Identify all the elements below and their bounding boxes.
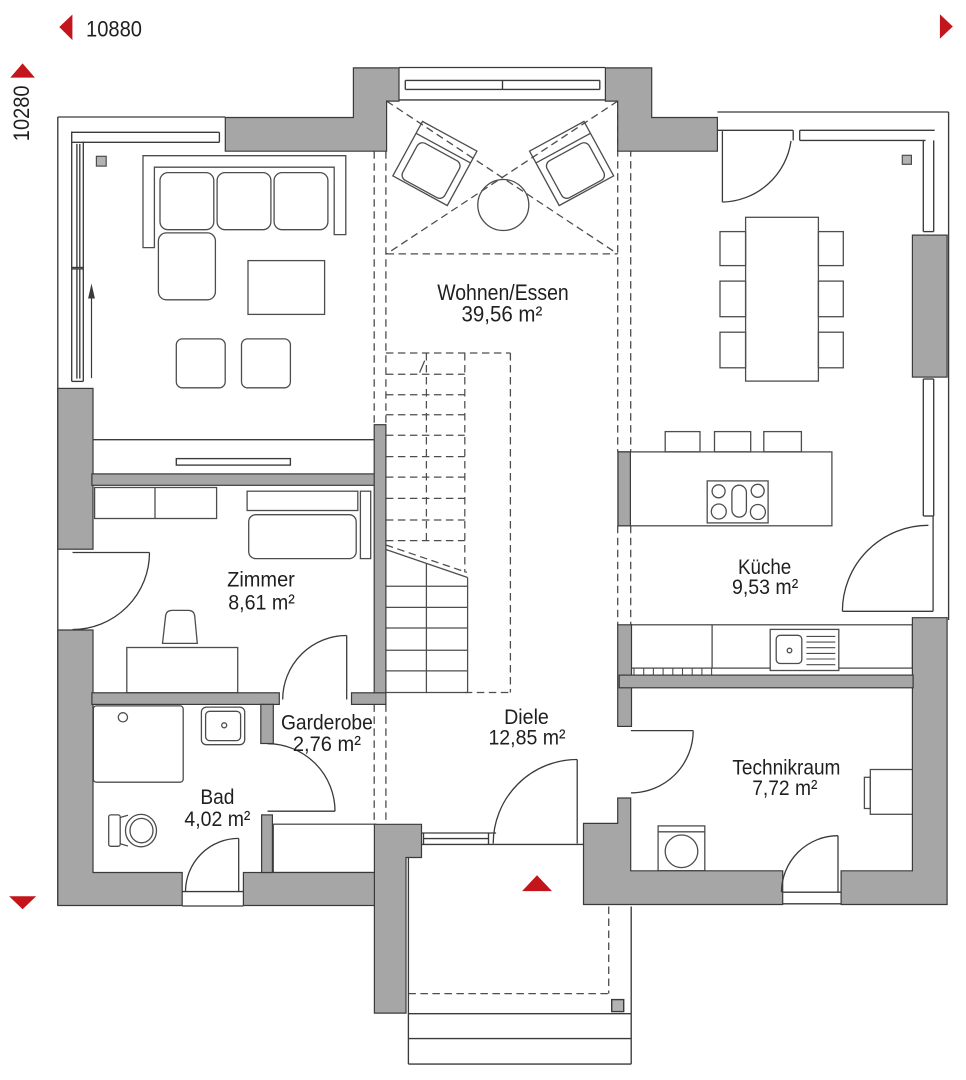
svg-text:8,61 m²: 8,61 m²	[228, 590, 295, 614]
svg-text:Bad: Bad	[200, 785, 234, 809]
svg-text:9,53 m²: 9,53 m²	[732, 575, 798, 599]
svg-text:4,02 m²: 4,02 m²	[184, 807, 250, 831]
svg-text:12,85 m²: 12,85 m²	[488, 726, 565, 750]
svg-text:39,56 m²: 39,56 m²	[462, 301, 543, 326]
svg-text:10280: 10280	[9, 85, 34, 141]
svg-text:Garderobe: Garderobe	[281, 710, 373, 734]
svg-text:Zimmer: Zimmer	[227, 568, 295, 592]
svg-text:2,76 m²: 2,76 m²	[293, 732, 361, 756]
svg-text:10880: 10880	[86, 16, 142, 41]
svg-text:7,72 m²: 7,72 m²	[752, 776, 817, 800]
